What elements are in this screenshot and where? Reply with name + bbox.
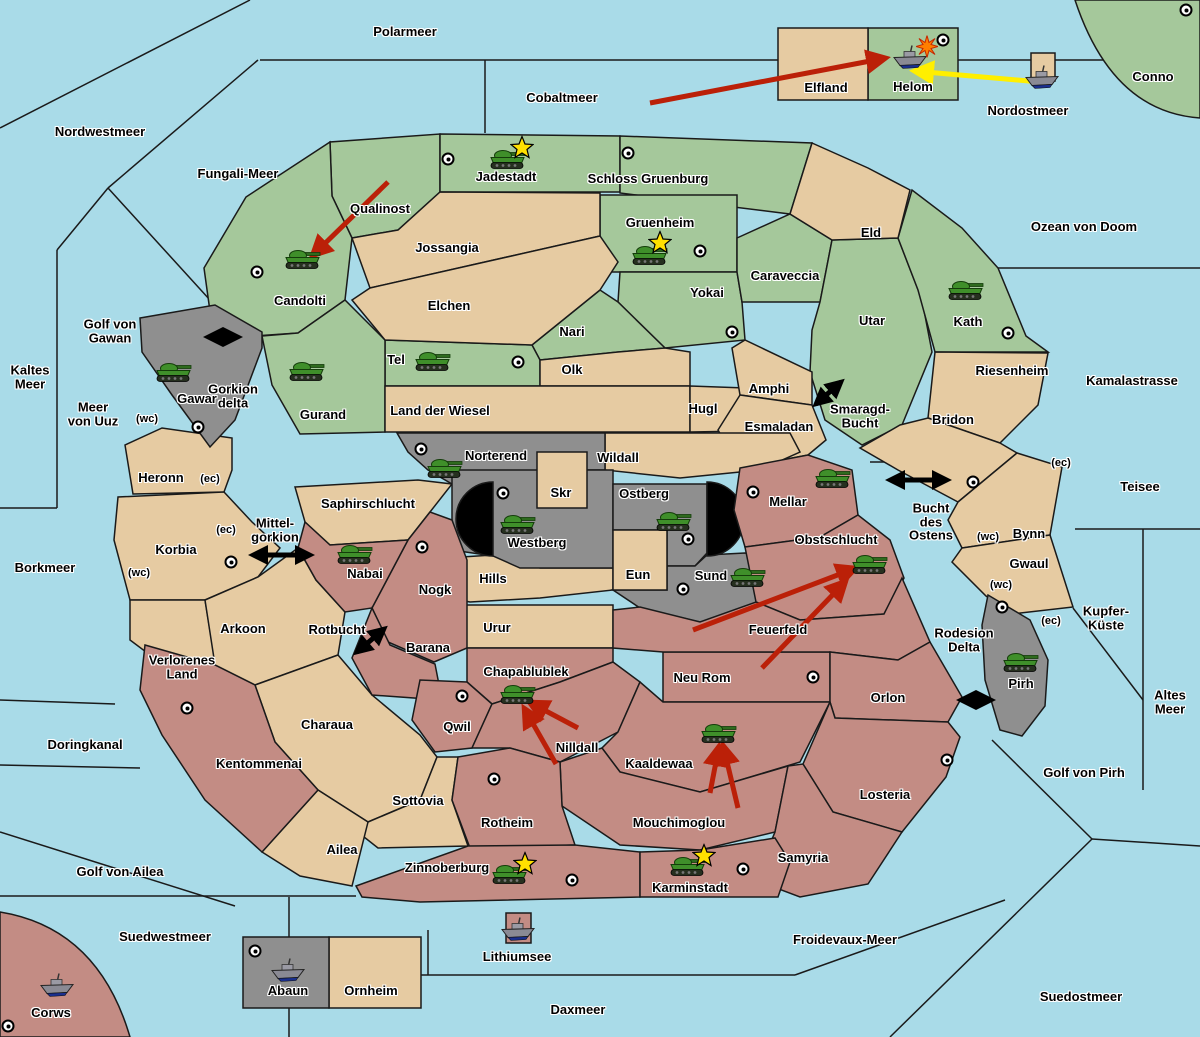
unit-tank-norterend[interactable]: [425, 456, 465, 485]
regions-layer: [0, 0, 1200, 1037]
region-land-der-wiesel[interactable]: [385, 386, 690, 432]
supply-center-dot: [945, 758, 949, 762]
combat-explosion: [916, 36, 938, 63]
supply-center-schloss-gruenburg: [622, 147, 635, 160]
tank-icon: [413, 349, 453, 373]
tank-icon: [498, 682, 538, 706]
supply-center-dot: [460, 694, 464, 698]
unit-tank-ostberg[interactable]: [654, 509, 694, 538]
supply-center-corws: [2, 1020, 15, 1033]
unit-tank-tel[interactable]: [413, 349, 453, 378]
sea-border: [1073, 608, 1143, 700]
supply-center-dot: [941, 38, 945, 42]
tank-icon: [699, 721, 739, 745]
sea-border: [57, 188, 108, 250]
supply-center-kentommenai: [181, 702, 194, 715]
supply-center-gawar: [192, 421, 205, 434]
region-conno[interactable]: [1075, 0, 1200, 118]
sea-border: [992, 740, 1092, 839]
tank-icon: [850, 552, 890, 576]
unit-tank-westberg[interactable]: [498, 512, 538, 541]
supply-center-dot: [501, 491, 505, 495]
tank-icon: [813, 466, 853, 490]
supply-center-dot: [971, 480, 975, 484]
unit-ship-lithiumsee[interactable]: [500, 916, 536, 949]
supply-center-karminstadt: [737, 863, 750, 876]
supply-center-abaun: [249, 945, 262, 958]
supply-center-qwil: [456, 690, 469, 703]
supply-center-dot: [492, 777, 496, 781]
ship-icon: [500, 916, 536, 944]
victory-star-icon: [513, 852, 537, 876]
supply-center-dot: [253, 949, 257, 953]
supply-center-kath: [1002, 327, 1015, 340]
region-urur[interactable]: [465, 605, 613, 648]
unit-tank-pirh[interactable]: [1001, 650, 1041, 679]
ship-icon: [270, 957, 306, 985]
supply-center-korbia: [225, 556, 238, 569]
supply-center-dot: [420, 545, 424, 549]
tank-icon: [425, 456, 465, 480]
victory-star: [692, 844, 716, 873]
supply-center-dot: [516, 360, 520, 364]
supply-center-dot: [1006, 331, 1010, 335]
supply-center-westberg: [497, 487, 510, 500]
supply-center-dot: [1184, 8, 1188, 12]
unit-ship-abaun[interactable]: [270, 957, 306, 990]
supply-center-bridon: [967, 476, 980, 489]
supply-center-gruenheim: [694, 245, 707, 258]
supply-center-sund: [677, 583, 690, 596]
tank-icon: [283, 247, 323, 271]
supply-center-dot: [681, 587, 685, 591]
sea-border: [0, 0, 250, 128]
unit-ship-nordostmeer[interactable]: [1024, 64, 1060, 97]
tank-icon: [154, 360, 194, 384]
unit-tank-kaaldewaa[interactable]: [699, 721, 739, 750]
sea-border: [795, 900, 1005, 975]
ship-icon: [39, 972, 75, 1000]
tank-icon: [335, 542, 375, 566]
region-skr[interactable]: [537, 452, 587, 508]
supply-center-tel: [512, 356, 525, 369]
supply-center-dot: [6, 1024, 10, 1028]
region-eun[interactable]: [613, 530, 667, 590]
supply-center-dot: [1000, 605, 1004, 609]
sea-border: [0, 832, 235, 906]
supply-center-candolti: [251, 266, 264, 279]
victory-star: [648, 231, 672, 260]
supply-center-norterend: [415, 443, 428, 456]
sea-border: [0, 700, 115, 704]
map-canvas: [0, 0, 1200, 1037]
unit-tank-sund[interactable]: [728, 565, 768, 594]
supply-center-losteria: [941, 754, 954, 767]
supply-center-dot: [626, 151, 630, 155]
supply-center-dot: [419, 447, 423, 451]
supply-center-neu-rom: [807, 671, 820, 684]
supply-center-pirh: [996, 601, 1009, 614]
game-map: PolarmeerCobaltmeerNordostmeerNordwestme…: [0, 0, 1200, 1037]
unit-ship-corws[interactable]: [39, 972, 75, 1005]
supply-center-helom: [937, 34, 950, 47]
supply-center-dot: [229, 560, 233, 564]
supply-center-nogk: [416, 541, 429, 554]
tank-icon: [287, 359, 327, 383]
unit-tank-chapablublek[interactable]: [498, 682, 538, 711]
explosion-icon: [916, 36, 938, 58]
victory-star-icon: [692, 844, 716, 868]
supply-center-dot: [811, 675, 815, 679]
sea-border: [1092, 839, 1200, 846]
region-gwaul[interactable]: [952, 535, 1073, 614]
supply-center-conno: [1180, 4, 1193, 17]
unit-tank-mellar[interactable]: [813, 466, 853, 495]
supply-center-mellar: [747, 486, 760, 499]
supply-center-rotheim: [488, 773, 501, 786]
unit-tank-kath[interactable]: [946, 278, 986, 307]
tank-icon: [654, 509, 694, 533]
supply-center-dot: [446, 157, 450, 161]
unit-tank-gawar[interactable]: [154, 360, 194, 389]
sea-border: [890, 839, 1092, 1037]
unit-tank-gurand[interactable]: [287, 359, 327, 388]
supply-center-dot: [686, 537, 690, 541]
supply-center-dot: [741, 867, 745, 871]
supply-center-dot: [196, 425, 200, 429]
tank-icon: [498, 512, 538, 536]
supply-center-dot: [751, 490, 755, 494]
victory-star-icon: [648, 231, 672, 255]
victory-star: [513, 852, 537, 881]
tank-icon: [728, 565, 768, 589]
supply-center-yokai: [726, 326, 739, 339]
victory-star: [510, 136, 534, 165]
sea-border: [108, 60, 258, 188]
sea-border: [0, 765, 140, 768]
victory-star-icon: [510, 136, 534, 160]
supply-center-dot: [698, 249, 702, 253]
region-eld[interactable]: [790, 143, 910, 240]
unit-tank-candolti[interactable]: [283, 247, 323, 276]
supply-center-dot: [730, 330, 734, 334]
supply-center-dot: [570, 878, 574, 882]
tank-icon: [946, 278, 986, 302]
region-neu-rom[interactable]: [663, 652, 830, 702]
ship-icon: [1024, 64, 1060, 92]
region-ornheim[interactable]: [329, 937, 421, 1008]
supply-center-zinnoberburg: [566, 874, 579, 887]
supply-center-dot: [255, 270, 259, 274]
supply-center-jadestadt: [442, 153, 455, 166]
tank-icon: [1001, 650, 1041, 674]
supply-center-dot: [185, 706, 189, 710]
unit-tank-nabai[interactable]: [335, 542, 375, 571]
unit-tank-obstschlucht[interactable]: [850, 552, 890, 581]
